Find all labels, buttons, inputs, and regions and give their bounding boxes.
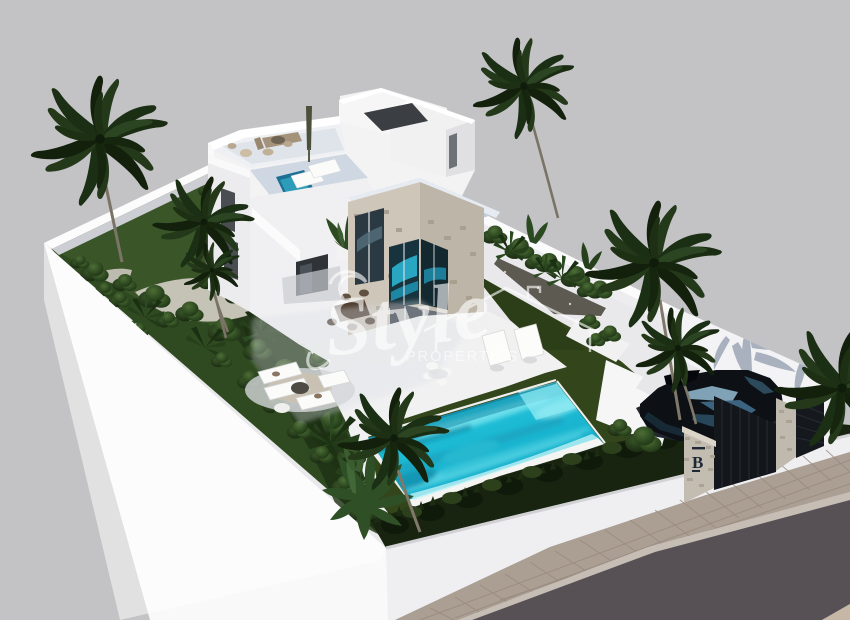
svg-text:B: B	[692, 453, 703, 472]
svg-text:PROPERTIES: PROPERTIES	[406, 349, 519, 365]
